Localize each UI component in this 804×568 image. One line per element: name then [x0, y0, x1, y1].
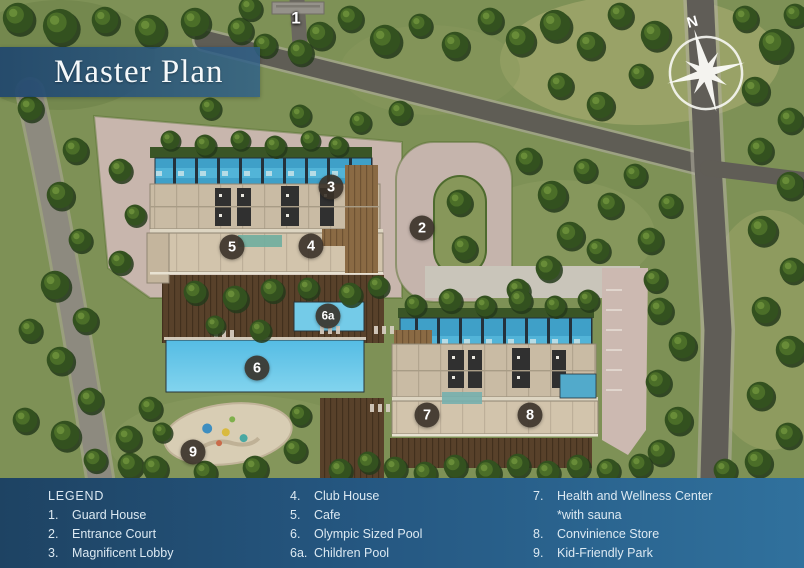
- legend-item-label: Entrance Court: [72, 525, 278, 544]
- legend-item-label: Health and Wellness Center: [557, 487, 795, 506]
- legend-item: 3. Magnificent Lobby: [48, 544, 278, 563]
- legend-item-label: Olympic Sized Pool: [314, 525, 520, 544]
- legend-item-label: Children Pool: [314, 544, 520, 563]
- legend-title: LEGEND: [48, 487, 278, 506]
- legend-item-label: Magnificent Lobby: [72, 544, 278, 563]
- legend-item: 7. Health and Wellness Center: [533, 487, 795, 506]
- wellness-spa: [442, 392, 482, 404]
- legend-item: 9. Kid-Friendly Park: [533, 544, 795, 563]
- water-feature-se: [560, 374, 596, 398]
- legend-item-number: 2.: [48, 525, 72, 544]
- legend-item: 6. Olympic Sized Pool: [290, 525, 520, 544]
- map-marker-7: 7: [415, 403, 440, 428]
- legend-item-label: Convinience Store: [557, 525, 795, 544]
- legend-item-number: 3.: [48, 544, 72, 563]
- legend-item: 4. Club House: [290, 487, 520, 506]
- title-banner: Master Plan: [0, 47, 260, 97]
- legend-item-number: 6a.: [290, 544, 314, 563]
- terrace-nw: [345, 165, 378, 273]
- legend-column-1: LEGEND 1. Guard House 2. Entrance Court …: [48, 487, 278, 563]
- legend-item-label: *with sauna: [557, 506, 795, 525]
- master-plan-page: N 1 2 3 4 5 6 6a 7 8 9 Master Plan LEGEN…: [0, 0, 804, 568]
- legend-item: 5. Cafe: [290, 506, 520, 525]
- legend-item: 2. Entrance Court: [48, 525, 278, 544]
- map-marker-5: 5: [220, 235, 245, 260]
- legend-bar: LEGEND 1. Guard House 2. Entrance Court …: [0, 478, 804, 568]
- legend-item-label: Cafe: [314, 506, 520, 525]
- legend-item-label: Club House: [314, 487, 520, 506]
- legend-item: 8. Convinience Store: [533, 525, 795, 544]
- map-marker-8: 8: [518, 403, 543, 428]
- legend-item-number: 4.: [290, 487, 314, 506]
- legend-item: 1. Guard House: [48, 506, 278, 525]
- legend-item-number: 9.: [533, 544, 557, 563]
- cafe-tables: [238, 235, 282, 247]
- map-marker-9: 9: [181, 440, 206, 465]
- map-marker-2: 2: [410, 216, 435, 241]
- page-title: Master Plan: [0, 47, 260, 97]
- legend-item-number: 8.: [533, 525, 557, 544]
- map-marker-6: 6: [245, 356, 270, 381]
- legend-column-3: 7. Health and Wellness Center *with saun…: [533, 487, 795, 563]
- legend-item-number: 5.: [290, 506, 314, 525]
- map-marker-4: 4: [299, 234, 324, 259]
- legend-item: *with sauna: [533, 506, 795, 525]
- map-marker-6a: 6a: [316, 304, 341, 329]
- building-southeast: [390, 308, 598, 468]
- clubhouse-pergola: [322, 229, 368, 246]
- map-marker-3: 3: [319, 175, 344, 200]
- legend-item: 6a. Children Pool: [290, 544, 520, 563]
- legend-item-label: Kid-Friendly Park: [557, 544, 795, 563]
- map-marker-1: 1: [284, 6, 309, 31]
- building-northwest: [147, 147, 383, 283]
- legend-column-2: 4. Club House 5. Cafe 6. Olympic Sized P…: [290, 487, 520, 563]
- side-driveway: [602, 268, 648, 455]
- legend-item-number: [533, 506, 557, 525]
- legend-item-number: 7.: [533, 487, 557, 506]
- legend-item-number: 1.: [48, 506, 72, 525]
- legend-item-number: 6.: [290, 525, 314, 544]
- legend-item-label: Guard House: [72, 506, 278, 525]
